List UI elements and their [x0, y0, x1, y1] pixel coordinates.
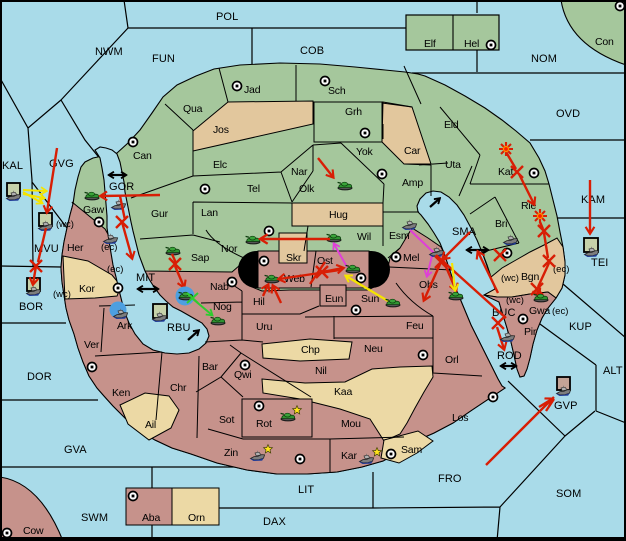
svg-text:Ark: Ark	[117, 320, 133, 332]
svg-text:Olk: Olk	[299, 183, 315, 195]
svg-text:Bar: Bar	[202, 361, 218, 373]
svg-text:Sch: Sch	[328, 85, 346, 97]
svg-text:Ail: Ail	[145, 419, 156, 431]
svg-text:Jad: Jad	[244, 84, 261, 96]
svg-text:Sam: Sam	[401, 444, 422, 456]
svg-text:Chp: Chp	[301, 344, 320, 356]
svg-text:NOM: NOM	[531, 53, 557, 65]
svg-text:GVA: GVA	[64, 444, 87, 456]
svg-text:Bri: Bri	[495, 218, 507, 230]
svg-text:Aba: Aba	[142, 512, 160, 524]
svg-text:LIT: LIT	[298, 484, 314, 496]
svg-text:Neu: Neu	[364, 343, 383, 355]
svg-text:Mel: Mel	[403, 252, 419, 264]
svg-text:FUN: FUN	[152, 53, 175, 65]
svg-text:TEI: TEI	[591, 257, 608, 269]
svg-text:ROD: ROD	[497, 350, 522, 362]
svg-text:OVD: OVD	[556, 108, 580, 120]
svg-text:Bgn: Bgn	[521, 271, 539, 283]
svg-text:(ec): (ec)	[107, 264, 123, 275]
svg-text:Kaa: Kaa	[334, 386, 352, 398]
svg-text:Chr: Chr	[170, 382, 187, 394]
svg-text:(ec): (ec)	[553, 264, 569, 275]
svg-text:FRO: FRO	[438, 473, 462, 485]
svg-text:DOR: DOR	[27, 371, 52, 383]
svg-text:RBU: RBU	[167, 322, 191, 334]
svg-text:ALT: ALT	[603, 365, 623, 377]
svg-text:Hil: Hil	[253, 296, 265, 308]
svg-text:(wc): (wc)	[501, 273, 519, 284]
svg-text:(ec): (ec)	[552, 306, 568, 317]
svg-text:Eld: Eld	[444, 119, 459, 131]
svg-text:Nor: Nor	[221, 243, 238, 255]
svg-text:NWM: NWM	[95, 46, 123, 58]
svg-text:Orl: Orl	[445, 354, 458, 366]
svg-text:Kor: Kor	[79, 283, 95, 295]
svg-text:Rot: Rot	[256, 418, 272, 430]
svg-text:Gaw: Gaw	[83, 204, 105, 216]
svg-text:Hel: Hel	[464, 38, 479, 50]
svg-text:Car: Car	[404, 145, 421, 157]
svg-text:Nil: Nil	[315, 365, 327, 377]
svg-text:Sot: Sot	[219, 414, 234, 426]
svg-text:MVU: MVU	[34, 243, 59, 255]
svg-text:Nab: Nab	[210, 281, 229, 293]
svg-text:Eun: Eun	[325, 293, 343, 305]
svg-text:Skr: Skr	[286, 252, 302, 264]
svg-text:COB: COB	[300, 45, 324, 57]
svg-text:Can: Can	[133, 150, 152, 162]
svg-text:SOM: SOM	[556, 488, 581, 500]
svg-text:Ken: Ken	[112, 387, 130, 399]
svg-text:Jos: Jos	[213, 124, 229, 136]
svg-text:GOR: GOR	[109, 181, 134, 193]
svg-text:Gur: Gur	[151, 208, 169, 220]
svg-text:Qua: Qua	[183, 103, 203, 115]
svg-text:Amp: Amp	[402, 177, 423, 189]
svg-text:Ver: Ver	[84, 339, 100, 351]
svg-text:Uru: Uru	[256, 321, 273, 333]
svg-text:Qwi: Qwi	[234, 369, 251, 381]
svg-text:MIT: MIT	[136, 272, 155, 284]
svg-text:Elf: Elf	[424, 38, 436, 50]
svg-text:Tel: Tel	[247, 183, 260, 195]
svg-text:Feu: Feu	[406, 320, 424, 332]
svg-text:Ost: Ost	[317, 255, 333, 267]
svg-text:KAM: KAM	[581, 194, 605, 206]
svg-text:BOR: BOR	[19, 301, 43, 313]
svg-text:Uta: Uta	[445, 159, 461, 171]
svg-text:KAL: KAL	[2, 160, 23, 172]
svg-text:DAX: DAX	[263, 516, 286, 528]
svg-text:Lan: Lan	[201, 207, 218, 219]
svg-text:Hug: Hug	[329, 209, 348, 221]
svg-text:Sap: Sap	[191, 252, 209, 264]
svg-text:Wil: Wil	[357, 231, 371, 243]
svg-text:Her: Her	[67, 242, 84, 254]
svg-text:Orn: Orn	[188, 512, 205, 524]
svg-text:Yok: Yok	[356, 146, 373, 158]
svg-text:Grh: Grh	[345, 106, 362, 118]
svg-text:Con: Con	[595, 36, 614, 48]
svg-text:(wc): (wc)	[506, 295, 524, 306]
svg-text:KUP: KUP	[569, 321, 592, 333]
svg-text:Cow: Cow	[23, 525, 44, 537]
svg-text:(wc): (wc)	[56, 219, 74, 230]
svg-text:Nog: Nog	[213, 301, 232, 313]
svg-text:GVP: GVP	[554, 400, 578, 412]
svg-text:(wc): (wc)	[53, 289, 71, 300]
svg-text:POL: POL	[216, 11, 238, 23]
svg-text:Los: Los	[452, 412, 468, 424]
svg-text:SWM: SWM	[81, 512, 108, 524]
svg-text:Elc: Elc	[213, 159, 227, 171]
svg-text:Nar: Nar	[291, 166, 308, 178]
svg-text:Pir: Pir	[524, 326, 537, 338]
svg-text:Zin: Zin	[224, 447, 238, 459]
svg-text:Mou: Mou	[341, 418, 361, 430]
svg-text:Kar: Kar	[341, 450, 357, 462]
svg-text:Esm: Esm	[389, 230, 410, 242]
svg-text:Gwa: Gwa	[529, 305, 550, 317]
